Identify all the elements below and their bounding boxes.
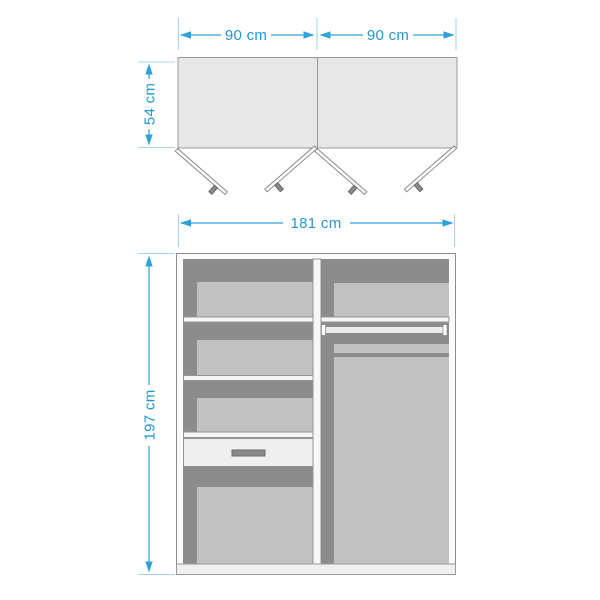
dim-label-width-181: 181 cm	[291, 215, 342, 232]
door-handle-icon	[275, 183, 284, 192]
wardrobe-top-view-body	[178, 58, 457, 149]
open-door-3	[309, 149, 367, 201]
door-handle-icon	[414, 183, 423, 192]
center-divider	[313, 259, 321, 564]
wardrobe-front-view-body	[177, 254, 456, 575]
diagram-svg: 90 cm 90 cm 54 cm	[0, 0, 600, 600]
door-handle-icon	[348, 185, 357, 194]
wardrobe-dimension-diagram: 90 cm 90 cm 54 cm	[0, 0, 600, 600]
right-compartment	[321, 259, 449, 564]
back-panel	[197, 340, 313, 376]
back-panel	[334, 283, 449, 317]
door-panel	[265, 146, 317, 192]
arrowhead-up	[145, 64, 152, 75]
arrowhead-right	[444, 31, 455, 38]
dim-label-top-left-90: 90 cm	[225, 27, 267, 44]
rod-end-cap-left	[322, 325, 326, 336]
dim-label-depth-54: 54 cm	[142, 83, 159, 125]
back-panel	[197, 487, 313, 564]
dim-label-top-right-90: 90 cm	[367, 27, 409, 44]
arrowhead-left	[180, 31, 191, 38]
dimension-total-height: 197 cm	[138, 254, 175, 575]
base-plinth	[177, 564, 456, 575]
drawer-handle	[232, 450, 265, 456]
arrowhead-left	[180, 219, 191, 226]
top-view: 90 cm 90 cm 54 cm	[138, 18, 462, 201]
arrowhead-up	[145, 256, 152, 267]
back-panel	[197, 398, 313, 432]
arrowhead-down	[145, 135, 152, 146]
back-panel-strip	[334, 344, 449, 353]
door-panel	[404, 146, 456, 192]
door-handle-icon	[209, 185, 218, 194]
back-panel	[197, 282, 313, 317]
shelf	[321, 317, 449, 322]
open-door-1	[170, 149, 228, 201]
door-panel	[315, 149, 367, 195]
arrowhead-down	[145, 562, 152, 573]
arrowhead-right	[304, 31, 315, 38]
shelf	[184, 376, 314, 381]
arrowhead-left	[320, 31, 331, 38]
hanging-rod	[322, 327, 447, 334]
front-view: 181 cm 197 cm	[138, 214, 456, 575]
open-doors	[170, 146, 462, 201]
open-door-2	[265, 146, 323, 198]
rod-end-cap-right	[443, 325, 447, 336]
back-panel	[334, 357, 449, 564]
door-panel	[175, 149, 227, 195]
dimension-width-left: 90 cm	[180, 27, 315, 44]
dimension-total-width: 181 cm	[180, 215, 454, 232]
dimension-depth: 54 cm	[138, 62, 175, 148]
arrowhead-right	[443, 219, 454, 226]
shelf	[184, 317, 314, 322]
dimension-width-right: 90 cm	[320, 27, 455, 44]
shelf	[184, 432, 314, 438]
dim-label-height-197: 197 cm	[142, 390, 159, 441]
left-compartment	[183, 259, 313, 564]
open-door-4	[404, 146, 462, 198]
